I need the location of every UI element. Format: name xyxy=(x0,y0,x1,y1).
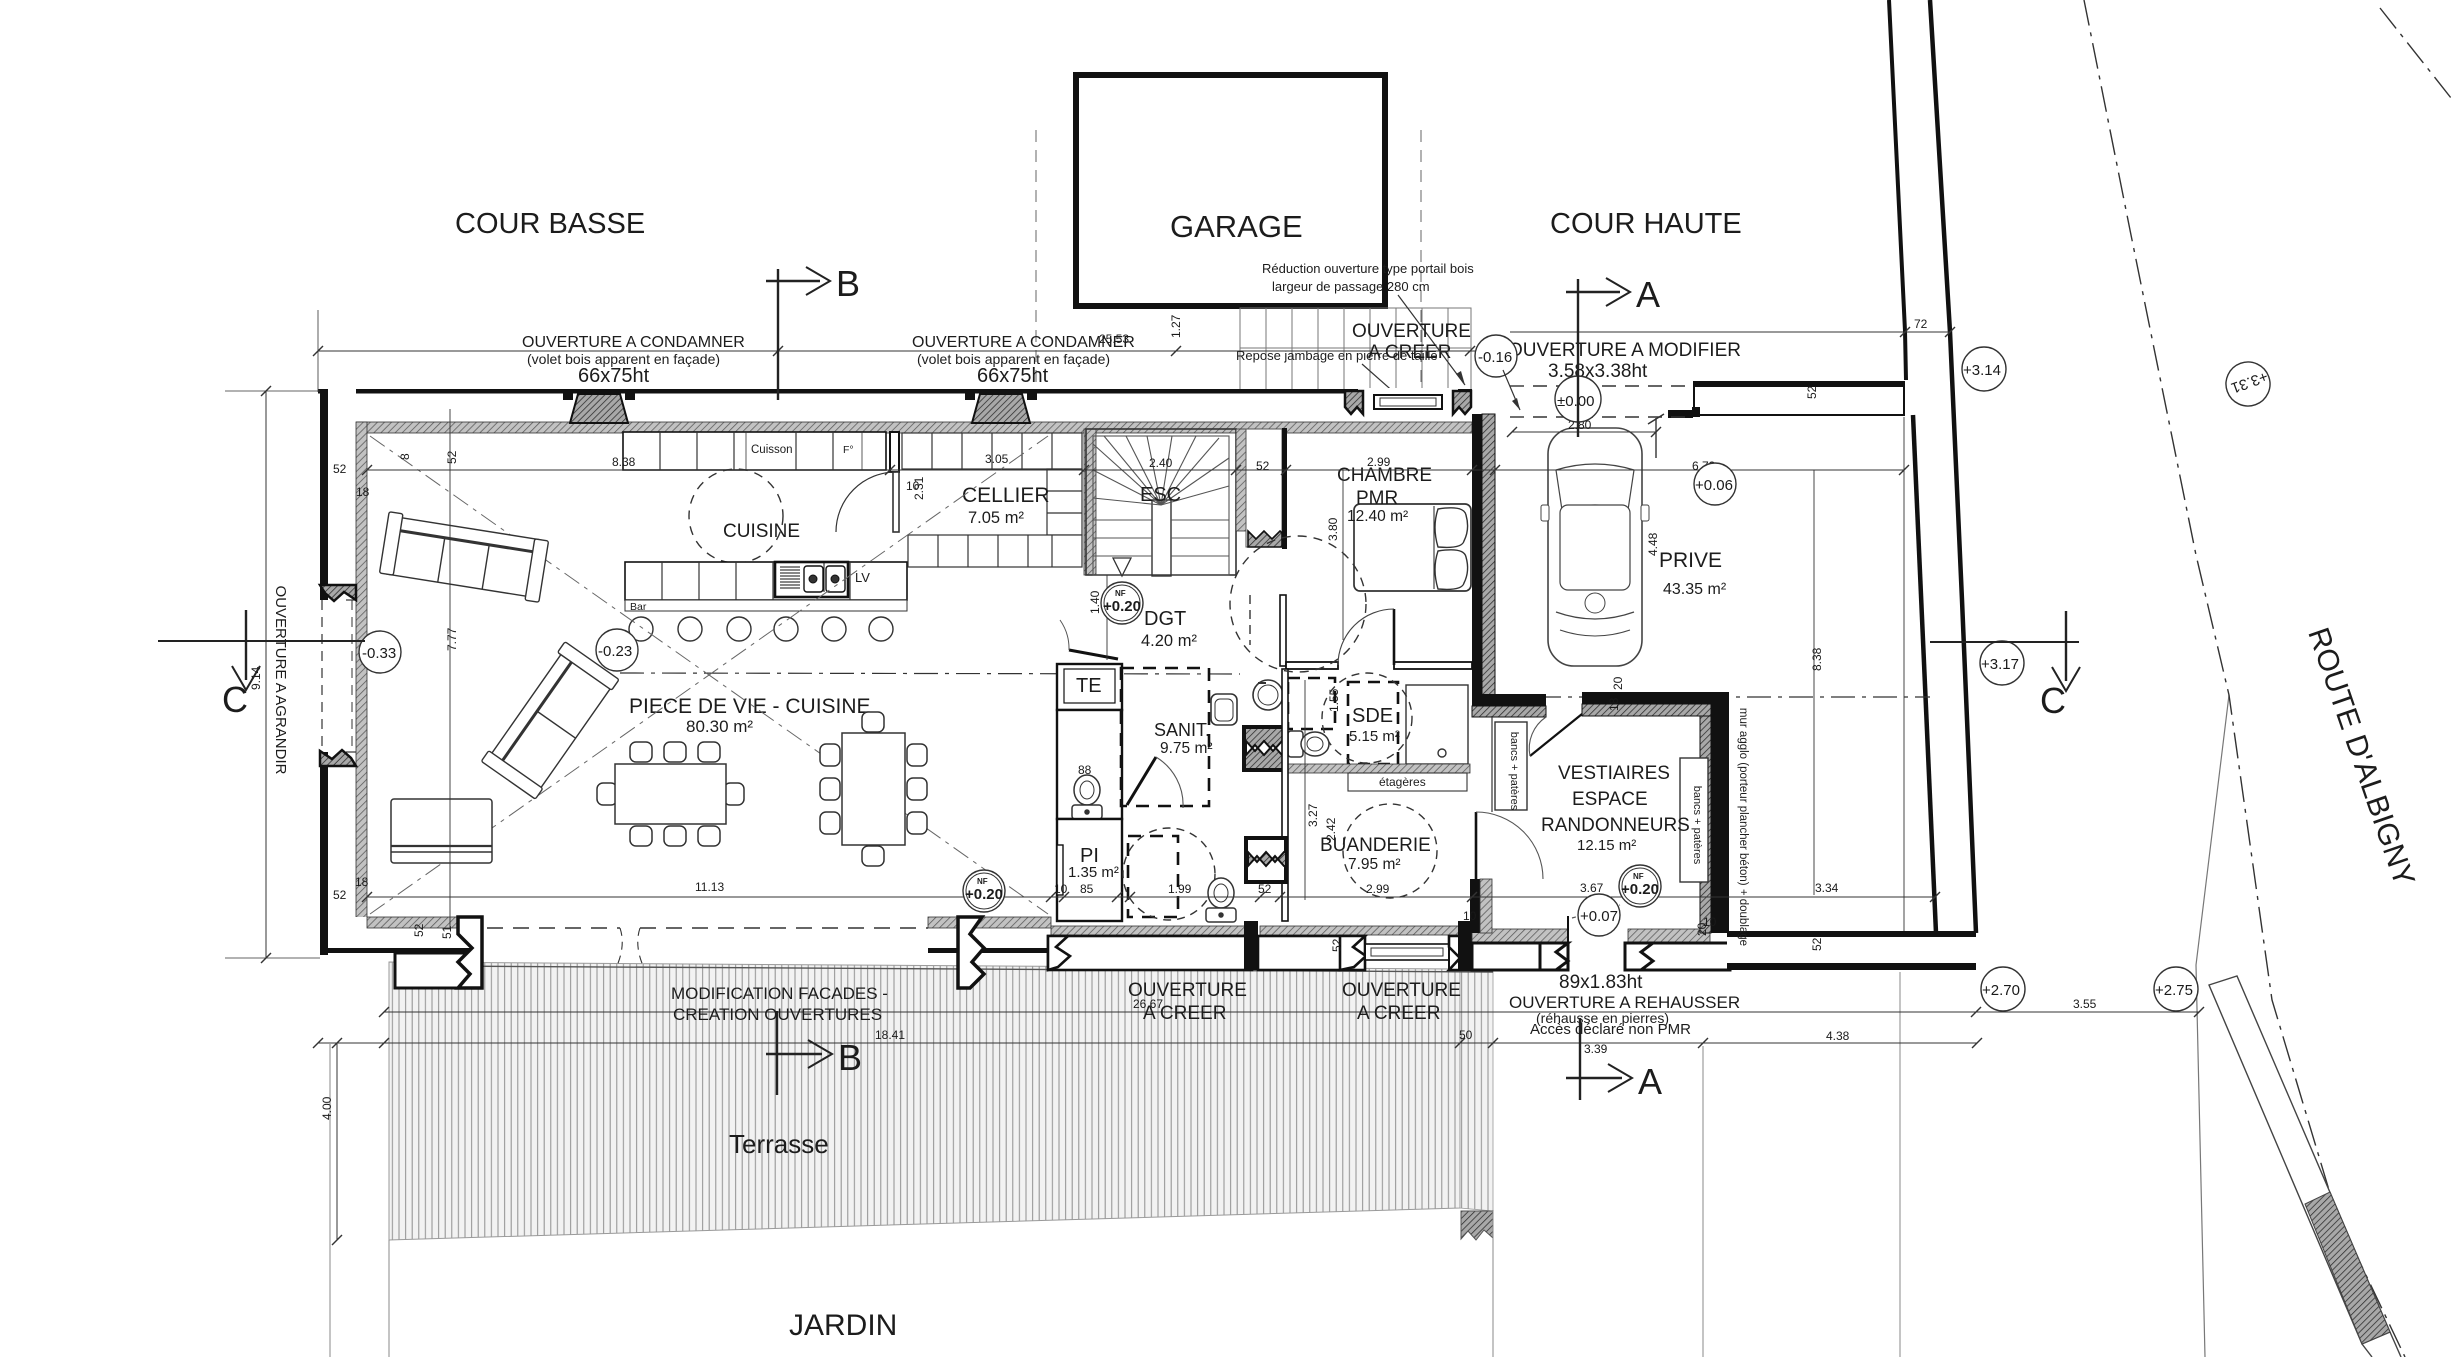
svg-text:10: 10 xyxy=(1054,882,1068,896)
svg-text:3.55: 3.55 xyxy=(2073,997,2097,1011)
svg-text:66x75ht: 66x75ht xyxy=(578,365,650,387)
svg-text:+0.07: +0.07 xyxy=(1580,908,1618,925)
svg-text:3.34: 3.34 xyxy=(1815,881,1839,895)
svg-text:10: 10 xyxy=(1703,915,1717,929)
svg-text:72: 72 xyxy=(1914,317,1928,331)
svg-text:F°: F° xyxy=(843,444,854,456)
svg-text:étagères: étagères xyxy=(1379,775,1426,789)
svg-text:+2.70: +2.70 xyxy=(1982,982,2020,999)
svg-text:RANDONNEURS: RANDONNEURS xyxy=(1541,815,1690,836)
svg-text:18: 18 xyxy=(1607,697,1621,711)
svg-text:18.41: 18.41 xyxy=(875,1028,905,1042)
svg-text:+3.17: +3.17 xyxy=(1981,656,2019,673)
svg-text:MODIFICATION FACADES -: MODIFICATION FACADES - xyxy=(671,984,888,1003)
svg-text:COUR HAUTE: COUR HAUTE xyxy=(1550,208,1742,240)
svg-text:OUVERTURE: OUVERTURE xyxy=(1352,321,1471,342)
svg-text:Accès déclaré non PMR: Accès déclaré non PMR xyxy=(1530,1021,1691,1038)
svg-text:+0.20: +0.20 xyxy=(965,886,1003,903)
svg-text:52: 52 xyxy=(445,450,459,464)
svg-text:1.99: 1.99 xyxy=(1168,882,1192,896)
svg-text:Réduction ouverture type porta: Réduction ouverture type portail bois xyxy=(1262,261,1474,276)
svg-text:5.15 m²: 5.15 m² xyxy=(1349,728,1400,745)
svg-text:-0.23: -0.23 xyxy=(598,643,632,660)
svg-text:3.39: 3.39 xyxy=(1584,1042,1608,1056)
svg-text:2.99: 2.99 xyxy=(1367,455,1391,469)
svg-text:52: 52 xyxy=(333,462,347,476)
svg-text:mur agglo (porteur plancher bé: mur agglo (porteur plancher béton) + dou… xyxy=(1737,708,1749,946)
svg-text:OUVERTURE: OUVERTURE xyxy=(1342,980,1461,1001)
svg-text:SDE: SDE xyxy=(1352,705,1393,727)
svg-text:1.55: 1.55 xyxy=(1327,688,1341,712)
svg-text:88: 88 xyxy=(1078,763,1092,777)
svg-text:3.27: 3.27 xyxy=(1306,803,1320,827)
svg-text:3.05: 3.05 xyxy=(985,452,1009,466)
svg-text:3.80: 3.80 xyxy=(1326,517,1340,541)
svg-text:PRIVE: PRIVE xyxy=(1659,549,1722,572)
svg-text:18: 18 xyxy=(355,875,369,889)
svg-text:Bar: Bar xyxy=(630,601,647,613)
svg-text:bancs + patères: bancs + patères xyxy=(1508,732,1520,811)
svg-text:2.31: 2.31 xyxy=(912,476,926,500)
svg-text:2.99: 2.99 xyxy=(1366,882,1390,896)
svg-text:52: 52 xyxy=(412,923,426,937)
svg-text:NF: NF xyxy=(1633,872,1644,881)
svg-text:Cuisson: Cuisson xyxy=(751,444,793,456)
svg-text:JARDIN: JARDIN xyxy=(789,1309,897,1342)
svg-text:+0.20: +0.20 xyxy=(1621,881,1659,898)
svg-text:89x1.83ht: 89x1.83ht xyxy=(1559,972,1643,993)
svg-text:A CREER: A CREER xyxy=(1368,342,1451,363)
svg-text:80.30 m²: 80.30 m² xyxy=(686,717,753,736)
svg-text:PIECE DE VIE - CUISINE: PIECE DE VIE - CUISINE xyxy=(629,695,871,718)
svg-text:OUVERTURE: OUVERTURE xyxy=(1128,980,1247,1001)
svg-text:3.58x3.38ht: 3.58x3.38ht xyxy=(1548,361,1648,382)
svg-text:8: 8 xyxy=(398,453,412,460)
svg-text:11.13: 11.13 xyxy=(695,880,724,894)
svg-text:10: 10 xyxy=(1463,909,1477,923)
svg-text:9.14: 9.14 xyxy=(249,666,263,690)
svg-text:20: 20 xyxy=(1611,676,1625,690)
svg-text:+2.75: +2.75 xyxy=(2155,982,2193,999)
svg-text:52: 52 xyxy=(1258,882,1272,896)
svg-text:7.05 m²: 7.05 m² xyxy=(968,509,1024,527)
svg-text:ESPACE: ESPACE xyxy=(1572,789,1648,810)
svg-text:50: 50 xyxy=(1459,1028,1473,1042)
svg-text:2.42: 2.42 xyxy=(1324,817,1338,841)
svg-text:1.40: 1.40 xyxy=(1088,590,1102,614)
svg-text:DGT: DGT xyxy=(1144,608,1186,630)
svg-text:C: C xyxy=(222,679,248,720)
svg-text:+3.14: +3.14 xyxy=(1963,362,2001,379)
svg-text:largeur de passage 280 cm: largeur de passage 280 cm xyxy=(1272,279,1430,294)
svg-text:CUISINE: CUISINE xyxy=(723,521,800,542)
svg-text:OUVERTURE A CONDAMNER: OUVERTURE A CONDAMNER xyxy=(912,334,1135,351)
svg-text:4.20 m²: 4.20 m² xyxy=(1141,632,1197,650)
svg-text:VESTIAIRES: VESTIAIRES xyxy=(1558,763,1670,784)
svg-text:-0.16: -0.16 xyxy=(1478,349,1512,366)
svg-text:NF: NF xyxy=(1115,589,1126,598)
svg-text:LV: LV xyxy=(855,570,870,585)
svg-text:4.00: 4.00 xyxy=(320,1096,334,1120)
svg-text:52: 52 xyxy=(1810,937,1824,951)
svg-text:52: 52 xyxy=(333,888,347,902)
svg-text:9.75 m²: 9.75 m² xyxy=(1160,740,1213,757)
svg-text:8.38: 8.38 xyxy=(612,455,636,469)
svg-text:8.38: 8.38 xyxy=(1810,647,1824,671)
svg-text:Terrasse: Terrasse xyxy=(729,1129,829,1159)
svg-text:7.77: 7.77 xyxy=(445,627,459,651)
svg-text:85: 85 xyxy=(1080,882,1094,896)
svg-text:B: B xyxy=(836,263,860,304)
svg-text:A CREER: A CREER xyxy=(1143,1003,1226,1024)
svg-text:52: 52 xyxy=(1256,459,1270,473)
svg-text:GARAGE: GARAGE xyxy=(1170,209,1303,244)
svg-text:52: 52 xyxy=(1330,938,1344,952)
svg-text:OUVERTURE A AGRANDIR: OUVERTURE A AGRANDIR xyxy=(272,586,289,775)
svg-text:NF: NF xyxy=(977,877,988,886)
svg-text:1.35 m²: 1.35 m² xyxy=(1068,864,1119,881)
svg-text:51: 51 xyxy=(440,925,454,939)
svg-text:A CREER: A CREER xyxy=(1357,1003,1440,1024)
svg-text:C: C xyxy=(2040,680,2066,721)
svg-text:12.15 m²: 12.15 m² xyxy=(1577,837,1636,854)
svg-text:A: A xyxy=(1638,1061,1662,1102)
svg-text:COUR BASSE: COUR BASSE xyxy=(455,208,645,240)
svg-text:3.67: 3.67 xyxy=(1580,881,1604,895)
svg-text:OUVERTURE A MODIFIER: OUVERTURE A MODIFIER xyxy=(1508,340,1741,361)
svg-text:4.48: 4.48 xyxy=(1646,532,1660,556)
svg-text:OUVERTURE A CONDAMNER: OUVERTURE A CONDAMNER xyxy=(522,334,745,351)
svg-text:18: 18 xyxy=(356,485,370,499)
svg-text:-0.33: -0.33 xyxy=(362,645,396,662)
svg-text:66x75ht: 66x75ht xyxy=(977,365,1049,387)
svg-text:PMR: PMR xyxy=(1356,488,1398,509)
svg-text:43.35 m²: 43.35 m² xyxy=(1663,581,1727,598)
svg-text:±0.00: ±0.00 xyxy=(1557,393,1594,410)
svg-text:12.40 m²: 12.40 m² xyxy=(1347,508,1408,525)
svg-text:B: B xyxy=(838,1037,862,1078)
svg-text:4.38: 4.38 xyxy=(1826,1029,1850,1043)
svg-text:2.40: 2.40 xyxy=(1149,456,1173,470)
svg-text:1.27: 1.27 xyxy=(1169,314,1183,338)
svg-text:CREATION OUVERTURES: CREATION OUVERTURES xyxy=(673,1005,882,1024)
svg-text:A: A xyxy=(1636,274,1660,315)
svg-text:bancs + patères: bancs + patères xyxy=(1691,786,1703,865)
svg-text:SANIT.: SANIT. xyxy=(1154,720,1210,740)
svg-text:52: 52 xyxy=(1805,385,1819,399)
svg-text:ESC: ESC xyxy=(1140,484,1181,506)
svg-text:TE: TE xyxy=(1076,675,1102,697)
svg-text:+0.20: +0.20 xyxy=(1103,598,1141,615)
svg-text:7.95 m²: 7.95 m² xyxy=(1348,856,1401,873)
svg-text:+0.06: +0.06 xyxy=(1695,477,1733,494)
